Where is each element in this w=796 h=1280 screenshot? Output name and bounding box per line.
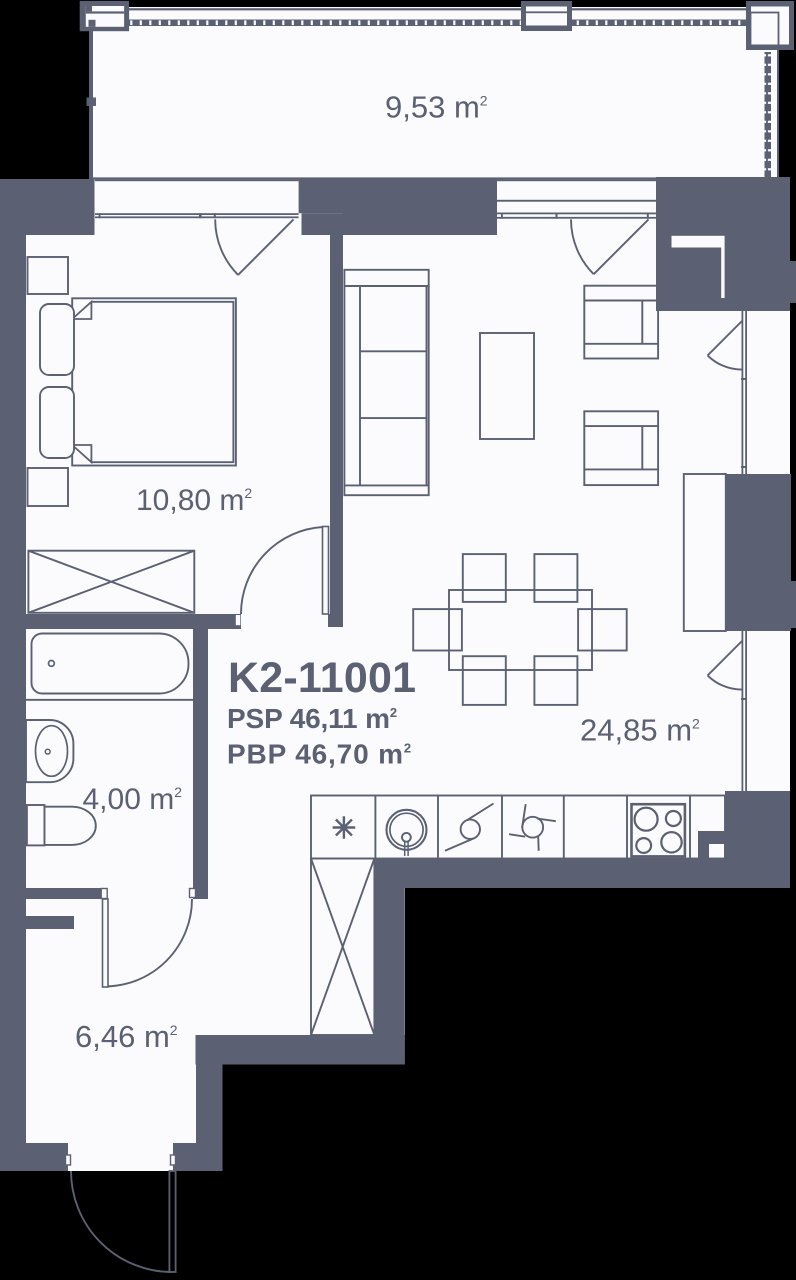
svg-text:K2-11001: K2-11001 [228, 654, 416, 702]
svg-text:9,53 m2: 9,53 m2 [385, 90, 488, 125]
svg-text:10,80 m2: 10,80 m2 [136, 484, 252, 517]
svg-text:PSP 46,11 m2: PSP 46,11 m2 [227, 703, 397, 734]
svg-text:PBP 46,70 m2: PBP 46,70 m2 [227, 739, 411, 770]
svg-text:4,00 m2: 4,00 m2 [83, 783, 183, 816]
svg-text:6,46 m2: 6,46 m2 [75, 1019, 178, 1054]
svg-text:24,85 m2: 24,85 m2 [580, 713, 700, 748]
